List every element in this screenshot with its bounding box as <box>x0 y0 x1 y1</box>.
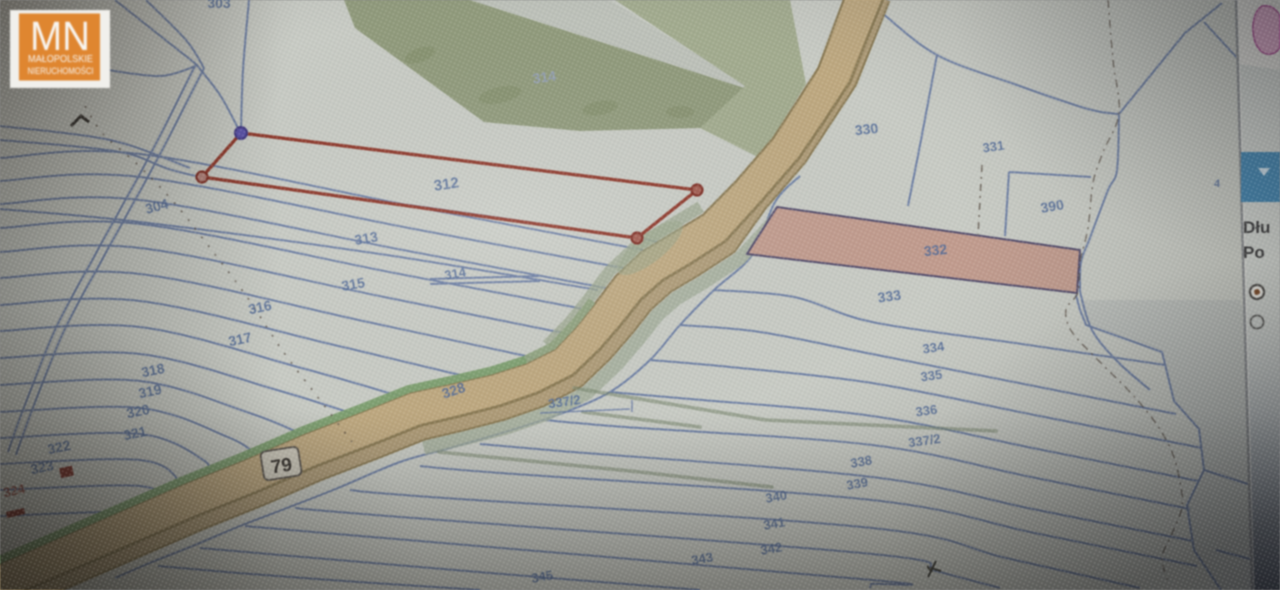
svg-text:MN: MN <box>30 13 90 59</box>
svg-text:MAŁOPOLSKIE: MAŁOPOLSKIE <box>28 54 93 65</box>
svg-text:NIERUCHOMOŚCI: NIERUCHOMOŚCI <box>28 65 94 76</box>
